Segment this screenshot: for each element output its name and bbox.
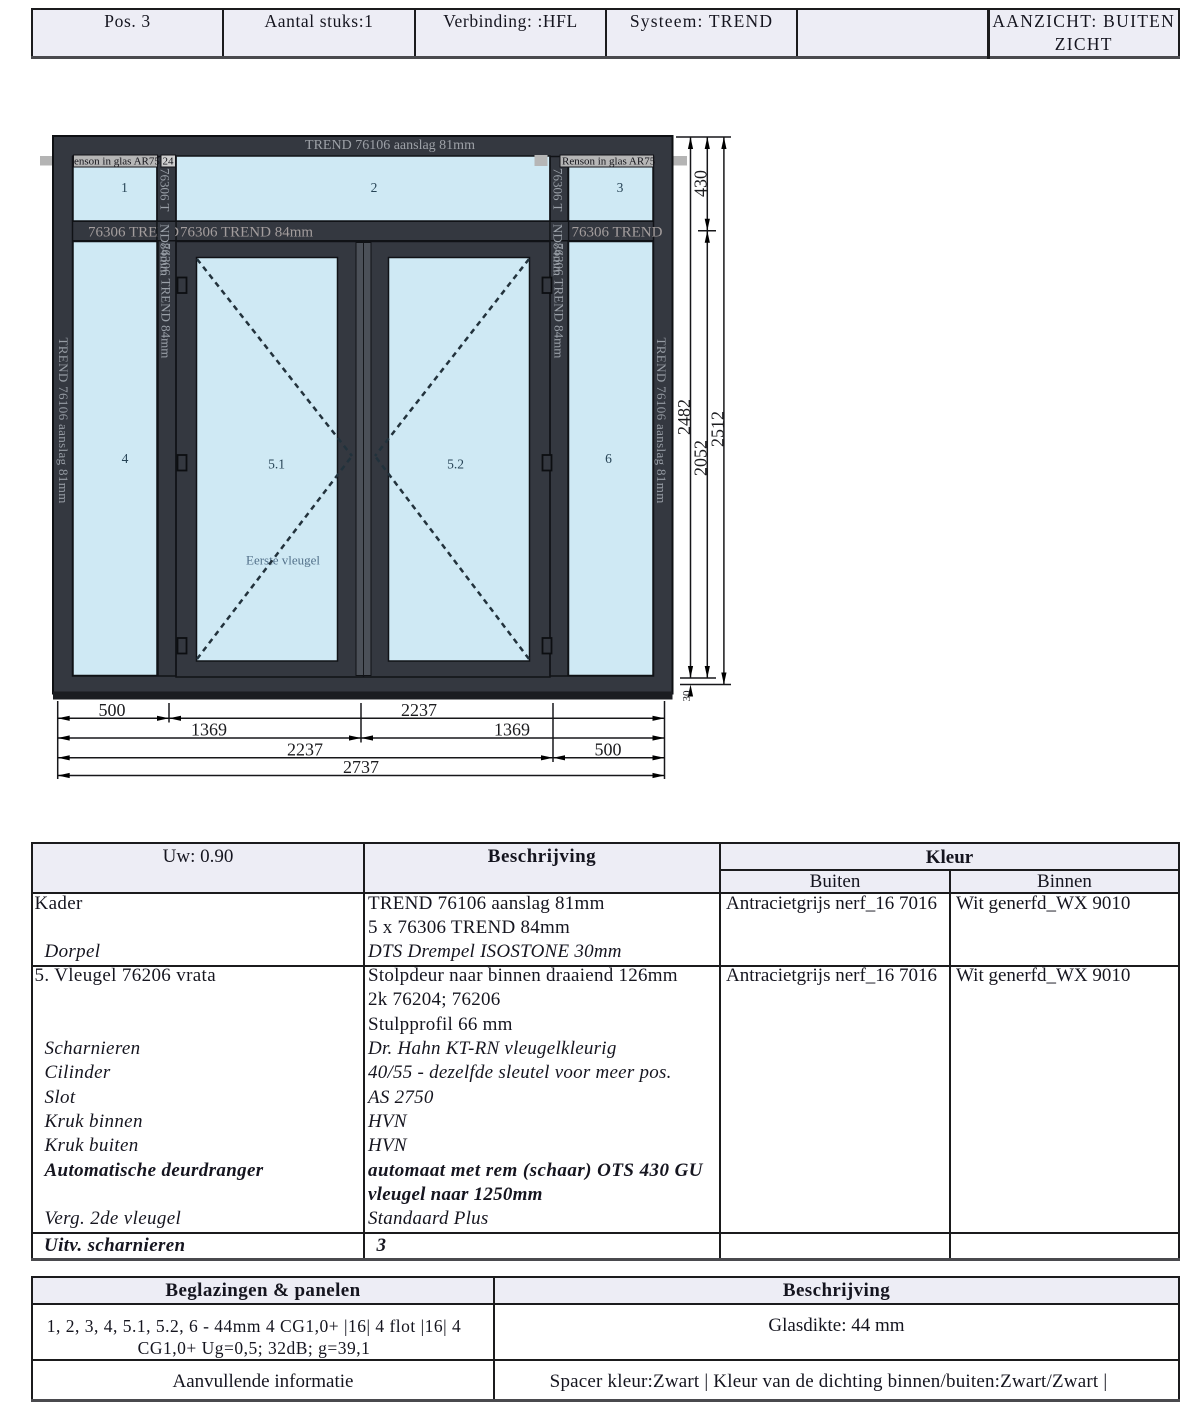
svg-text:76306 T: 76306 T: [158, 168, 173, 212]
svg-text:5.1: 5.1: [268, 457, 285, 472]
svg-text:30: 30: [681, 690, 693, 702]
svg-text:enson in glas AR75: enson in glas AR75: [74, 156, 160, 168]
svg-text:76306 T: 76306 T: [551, 168, 566, 212]
svg-text:5.2: 5.2: [447, 457, 464, 472]
svg-text:76306 TREND: 76306 TREND: [572, 225, 663, 241]
svg-text:76306 TREND 84mm: 76306 TREND 84mm: [159, 243, 174, 358]
svg-text:500: 500: [99, 700, 126, 720]
svg-text:2482: 2482: [674, 399, 694, 435]
svg-text:1369: 1369: [494, 720, 530, 740]
svg-text:76306 TREND 84mm: 76306 TREND 84mm: [552, 243, 567, 358]
svg-text:TREND 76106 aanslag 81mm: TREND 76106 aanslag 81mm: [305, 138, 475, 153]
svg-text:1369: 1369: [191, 720, 227, 740]
svg-text:TREND 76106 aanslag 81mm: TREND 76106 aanslag 81mm: [56, 338, 71, 504]
svg-text:2237: 2237: [401, 700, 437, 720]
svg-text:24: 24: [163, 156, 175, 168]
svg-text:1: 1: [121, 180, 128, 195]
svg-text:6: 6: [605, 451, 612, 466]
svg-text:76306 TREND 84mm: 76306 TREND 84mm: [180, 225, 313, 241]
svg-text:3: 3: [617, 180, 624, 195]
svg-text:4: 4: [122, 451, 129, 466]
svg-text:2: 2: [371, 180, 378, 195]
svg-text:Eerste vleugel: Eerste vleugel: [246, 553, 320, 568]
svg-text:TREND 76106 aanslag 81mm: TREND 76106 aanslag 81mm: [654, 338, 669, 504]
svg-text:Renson in glas AR75: Renson in glas AR75: [562, 156, 656, 168]
svg-text:2237: 2237: [287, 740, 323, 760]
svg-text:500: 500: [595, 740, 622, 760]
svg-text:2737: 2737: [343, 757, 379, 777]
svg-text:2512: 2512: [708, 411, 728, 447]
svg-text:430: 430: [691, 170, 711, 197]
